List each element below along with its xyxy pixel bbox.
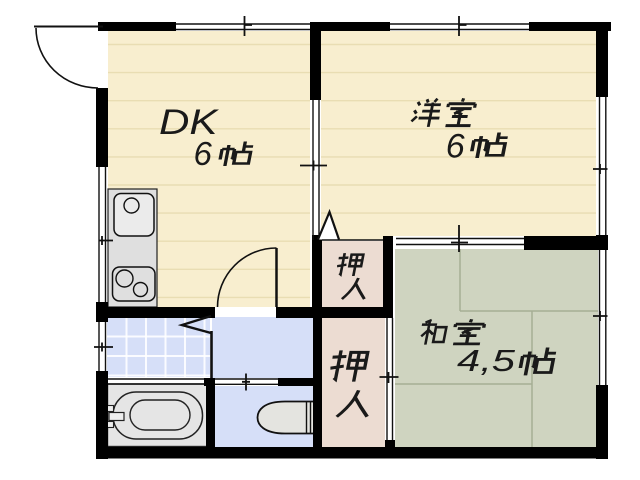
- svg-text:6: 6: [194, 135, 213, 172]
- svg-text:4,5: 4,5: [457, 344, 516, 378]
- svg-text:6: 6: [446, 128, 465, 166]
